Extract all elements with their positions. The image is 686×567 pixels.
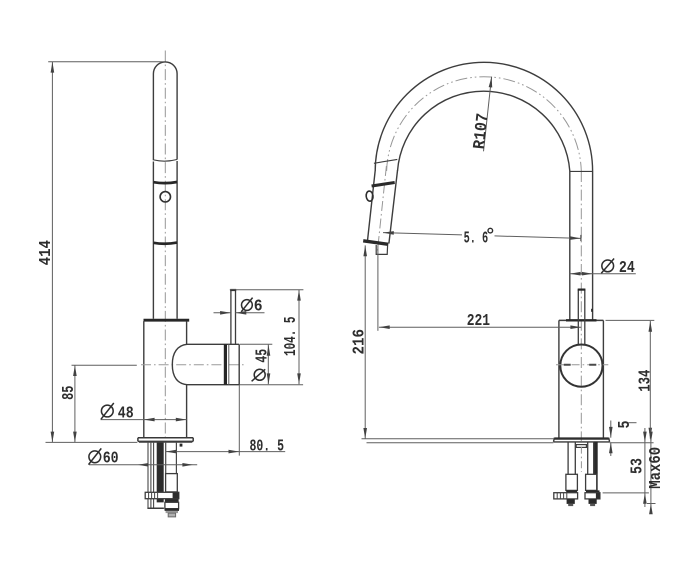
svg-text:216: 216 — [351, 329, 370, 355]
svg-text:221: 221 — [467, 312, 490, 331]
svg-text:Max60: Max60 — [647, 447, 666, 489]
svg-text:104. 5: 104. 5 — [282, 317, 301, 357]
svg-text:414: 414 — [37, 240, 56, 265]
svg-text:134: 134 — [637, 370, 656, 392]
svg-text:R107: R107 — [471, 112, 494, 150]
svg-text:45: 45 — [253, 349, 272, 363]
svg-text:85: 85 — [60, 386, 79, 400]
svg-text:5: 5 — [616, 421, 635, 429]
svg-text:80. 5: 80. 5 — [250, 437, 285, 456]
svg-text:60: 60 — [103, 449, 119, 468]
svg-text:53: 53 — [629, 458, 648, 474]
svg-text:5. 6: 5. 6 — [464, 230, 489, 249]
svg-text:6: 6 — [254, 298, 263, 317]
svg-text:48: 48 — [118, 404, 134, 423]
svg-text:24: 24 — [619, 259, 635, 278]
